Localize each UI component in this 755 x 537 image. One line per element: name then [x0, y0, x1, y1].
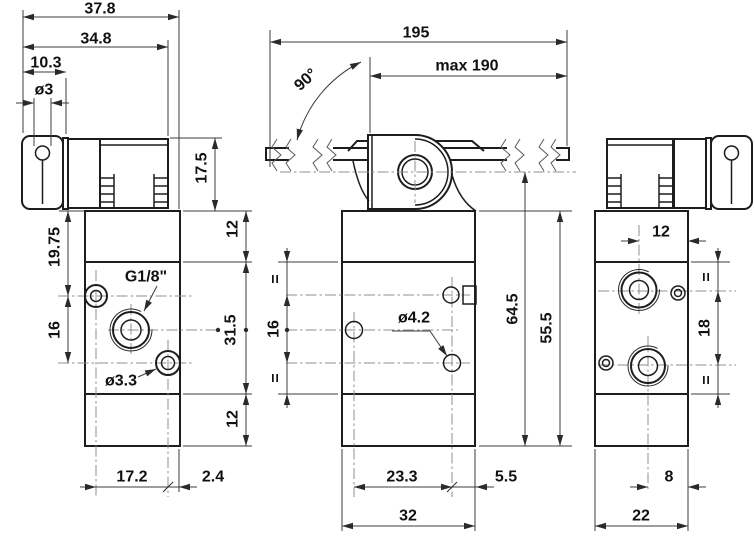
dim-port-row-spacing-label: 18 [697, 319, 714, 337]
dim-lever-axis-height-label: 64.5 [505, 293, 522, 324]
dim-roller-width: 10.3 [23, 55, 66, 73]
dim-lever-max-label: max 190 [435, 58, 498, 75]
dim-equal-bottom-label: = [699, 375, 716, 384]
hole-o42-label: ø4.2 [398, 310, 430, 327]
thread-port-label: G1/8" [125, 269, 167, 286]
dim-port-offset-label: 17.2 [116, 469, 147, 486]
dim-bottom-port-to-edge-label: 8 [665, 469, 674, 486]
dim-head-width-label: 34.8 [80, 31, 111, 48]
dim-section-top-label: 12 [225, 220, 242, 238]
dim-edge-offset-label: 2.4 [202, 469, 224, 486]
dim-hole-edge-offset-label: 5.5 [495, 469, 517, 486]
technical-drawing-page: 37.8 34.8 10.3 ø3 17.5 19.75 16 [0, 0, 755, 537]
dim-section-middle-label: 31.5 [223, 314, 240, 345]
dim-body-depth-label: 22 [632, 508, 650, 525]
dim-top-to-port-row-label: 19.75 [47, 227, 64, 267]
valve-body [85, 211, 180, 446]
dim-port-row-spacing-left-label: 16 [47, 321, 64, 339]
plunger-housing [674, 139, 706, 208]
plunger-housing [68, 139, 100, 208]
dim-port-to-edge-label: 12 [652, 224, 670, 241]
dim-hole-spacing-label: 23.3 [386, 469, 417, 486]
dim-equal-bottom-label: = [268, 373, 285, 382]
dim-equal-top-label: = [268, 274, 285, 283]
dim-body-width-label: 32 [399, 508, 417, 525]
actuator-head [607, 139, 673, 208]
dim-body-height-label: 55.5 [539, 312, 556, 343]
dim-roller-width-label: 10.3 [30, 55, 61, 72]
dim-section-bottom-label: 12 [225, 410, 242, 428]
actuator-head [100, 139, 168, 208]
dim-equal-top-label: = [699, 272, 716, 281]
dim-lever-overall-label: 195 [403, 25, 430, 42]
dim-head-height-label: 17.5 [194, 152, 211, 183]
dim-roller-pin-label: ø3 [35, 82, 54, 99]
dim-overall-width-label: 37.8 [84, 1, 115, 18]
dim-hole-row-spacing-label: 16 [266, 320, 283, 338]
valve-body [595, 211, 688, 446]
valve-technical-drawing: 37.8 34.8 10.3 ø3 17.5 19.75 16 [0, 0, 755, 537]
hole-o33-label: ø3.3 [105, 373, 137, 390]
